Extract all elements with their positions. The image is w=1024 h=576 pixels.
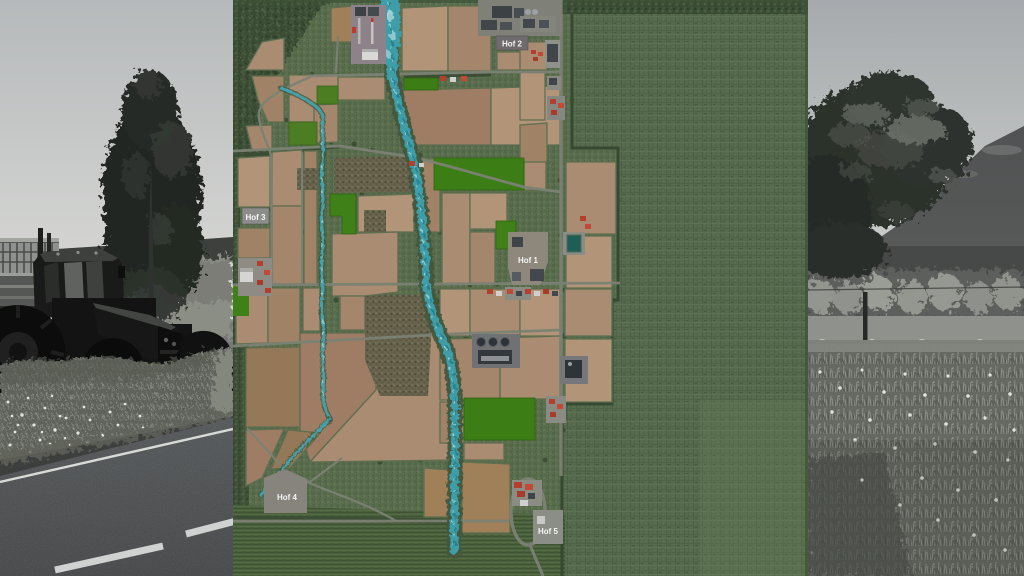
svg-text:Hof 4: Hof 4: [277, 493, 298, 502]
svg-text:Hof 5: Hof 5: [538, 527, 559, 536]
svg-text:Hof 3: Hof 3: [246, 213, 267, 222]
svg-text:Hof 1: Hof 1: [518, 256, 539, 265]
svg-text:Hof 2: Hof 2: [502, 40, 523, 49]
